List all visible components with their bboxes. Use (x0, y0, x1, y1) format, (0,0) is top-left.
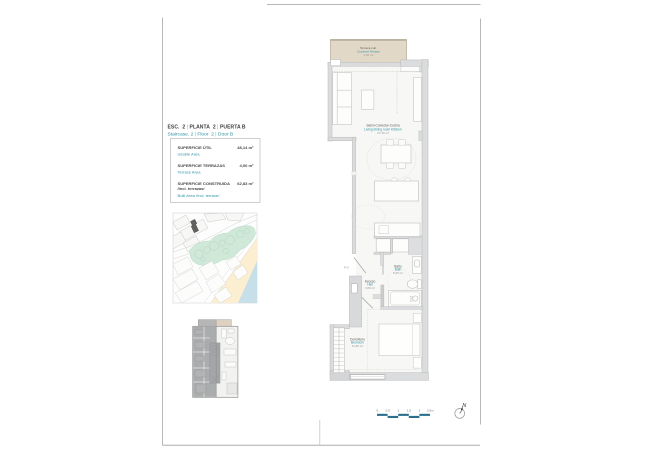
svg-text:Built Area /Incl. terrace/: Built Area /Incl. terrace/ (178, 193, 221, 198)
svg-text:3,80 m²: 3,80 m² (365, 286, 375, 290)
svg-text:5,05 m²: 5,05 m² (393, 271, 403, 275)
svg-text:4,00 m²: 4,00 m² (240, 163, 255, 168)
svg-text:P.1ª: P.1ª (344, 266, 349, 270)
svg-text:48,14 m²: 48,14 m² (237, 145, 254, 150)
svg-text:27,40 m²: 27,40 m² (377, 131, 389, 135)
svg-text:2.5m: 2.5m (427, 409, 434, 413)
svg-text:N: N (462, 403, 466, 409)
svg-text:62,83 m²: 62,83 m² (237, 181, 254, 186)
svg-text:SUPERFICIE ÚTIL: SUPERFICIE ÚTIL (178, 145, 213, 150)
svg-text:1.5: 1.5 (407, 409, 412, 413)
svg-text:Staircase. 2 | Floor 2 | Door: Staircase. 2 | Floor 2 | Door B (168, 131, 234, 137)
svg-text:4,00 m²: 4,00 m² (364, 53, 374, 57)
svg-text:ESC. 2 | PLANTA 2 | PUERTA B: ESC. 2 | PLANTA 2 | PUERTA B (168, 124, 246, 130)
svg-text:Usable Area: Usable Area (178, 151, 201, 156)
svg-text:SUPERFICIE TERRAZAS: SUPERFICIE TERRAZAS (178, 163, 226, 168)
svg-text:Terrace Area: Terrace Area (178, 170, 202, 175)
svg-text:0.5: 0.5 (386, 409, 391, 413)
svg-text:/Incl. terrazas/: /Incl. terrazas/ (178, 186, 206, 191)
svg-text:11,80 m²: 11,80 m² (352, 344, 364, 348)
svg-text:SUPERFICIE CONSTRUIDA: SUPERFICIE CONSTRUIDA (178, 181, 230, 186)
